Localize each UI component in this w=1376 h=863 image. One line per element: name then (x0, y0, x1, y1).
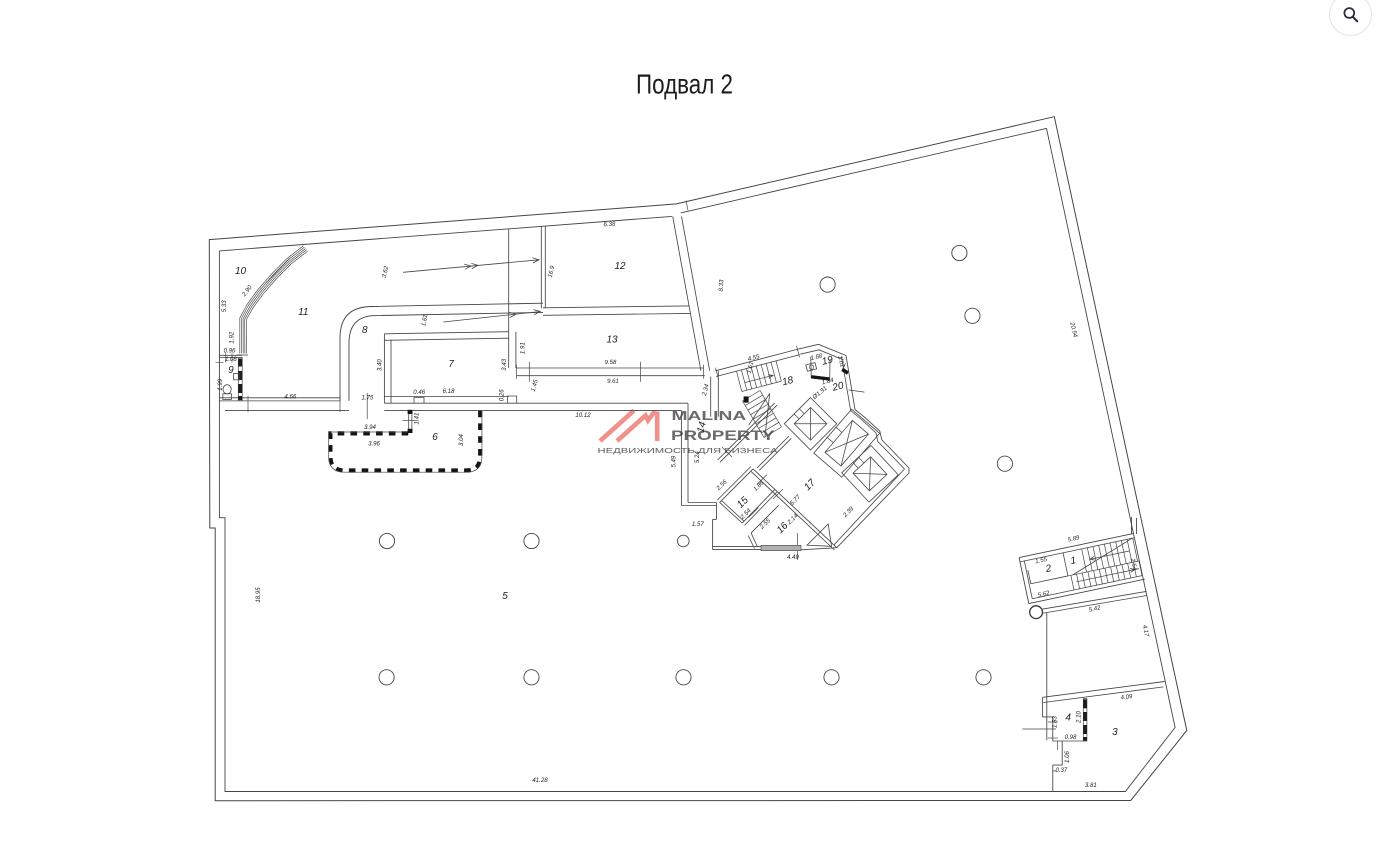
svg-text:2.10: 2.10 (1076, 710, 1083, 723)
svg-text:3.43: 3.43 (501, 358, 508, 370)
svg-text:12: 12 (614, 261, 626, 272)
svg-text:18.95: 18.95 (255, 587, 262, 603)
svg-text:1.06: 1.06 (1064, 750, 1071, 762)
svg-text:9: 9 (228, 365, 234, 376)
svg-text:3.81: 3.81 (1085, 782, 1097, 789)
svg-text:0.96: 0.96 (224, 348, 236, 355)
svg-text:1.91: 1.91 (519, 342, 526, 354)
svg-text:9.61: 9.61 (607, 378, 619, 385)
svg-text:6.18: 6.18 (443, 388, 455, 395)
svg-text:5.24: 5.24 (694, 451, 701, 463)
svg-text:7: 7 (448, 359, 454, 370)
svg-text:41.28: 41.28 (532, 777, 548, 784)
svg-text:3: 3 (1112, 727, 1118, 738)
svg-text:6.38: 6.38 (603, 221, 616, 229)
svg-text:0.37: 0.37 (1055, 767, 1067, 774)
svg-text:5.33: 5.33 (221, 300, 228, 312)
svg-text:Подвал 2: Подвал 2 (636, 69, 733, 100)
svg-text:MALINA: MALINA (672, 408, 747, 423)
svg-text:1.08: 1.08 (225, 356, 237, 363)
svg-text:11: 11 (298, 307, 308, 318)
svg-text:0.46: 0.46 (413, 389, 425, 396)
svg-text:4.66: 4.66 (284, 394, 296, 401)
svg-text:1.57: 1.57 (692, 521, 704, 528)
svg-text:3.04: 3.04 (458, 433, 465, 445)
svg-text:8.33: 8.33 (718, 279, 726, 292)
svg-text:4.49: 4.49 (787, 554, 799, 561)
svg-text:3.40: 3.40 (376, 359, 383, 371)
svg-text:PROPERTY: PROPERTY (671, 428, 775, 443)
svg-text:10.12: 10.12 (575, 412, 591, 419)
svg-text:3.96: 3.96 (368, 441, 380, 448)
svg-text:6: 6 (432, 432, 438, 443)
svg-text:13: 13 (606, 335, 618, 346)
svg-text:1.75: 1.75 (361, 395, 373, 402)
svg-text:9.58: 9.58 (604, 359, 617, 366)
svg-text:0.98: 0.98 (1065, 734, 1077, 741)
svg-text:10: 10 (235, 266, 247, 277)
svg-text:1.99: 1.99 (217, 378, 224, 390)
svg-text:1.92: 1.92 (229, 331, 236, 343)
svg-text:5: 5 (502, 591, 508, 602)
svg-text:3.94: 3.94 (364, 424, 376, 431)
svg-text:0.26: 0.26 (499, 389, 506, 401)
svg-text:1.41: 1.41 (414, 413, 421, 425)
svg-text:5.49: 5.49 (671, 455, 678, 467)
svg-text:1.83: 1.83 (1052, 715, 1059, 727)
svg-text:4: 4 (1065, 713, 1071, 724)
svg-text:8: 8 (362, 325, 368, 336)
